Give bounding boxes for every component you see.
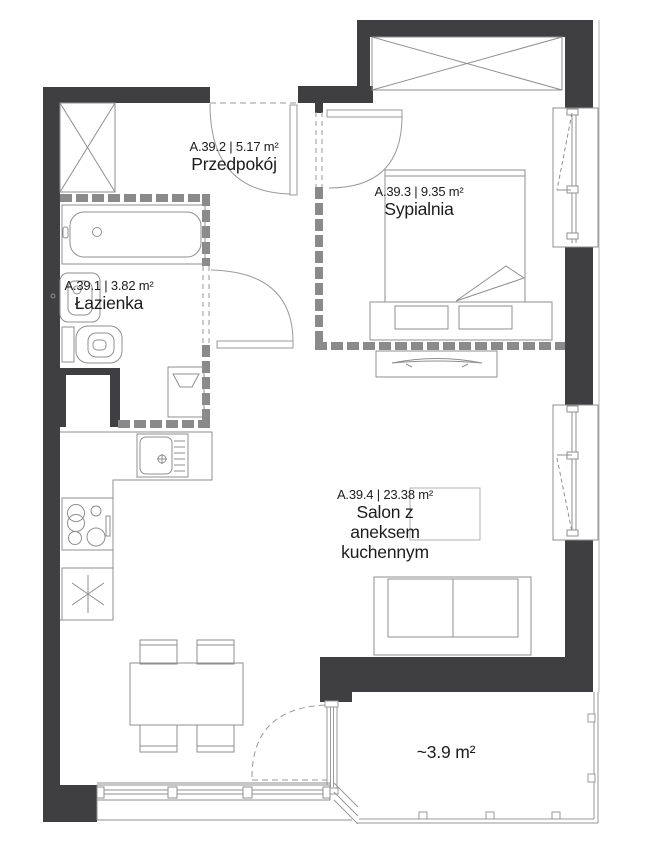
- tv-foot: [406, 364, 412, 367]
- wall-south-step: [320, 672, 352, 702]
- stove-burner: [87, 528, 105, 546]
- stove-burner: [68, 515, 85, 532]
- room-label-balcony: ~3.9 m²: [396, 742, 496, 762]
- bathroom-name-label: Łazienka: [49, 293, 169, 313]
- room-label-hall: A.39.2 | 5.17 m² Przedpokój: [174, 139, 294, 174]
- tv-screen: [392, 359, 482, 364]
- toilet-detail: [93, 340, 106, 350]
- kitchen-sink-basin: [140, 437, 172, 474]
- tv-cabinet: [376, 351, 497, 377]
- wall-right-middle: [565, 247, 593, 405]
- floor-plan: A.39.2 | 5.17 m² Przedpokój A.39.3 | 9.3…: [0, 0, 653, 844]
- living-window-cap: [567, 406, 578, 412]
- bed-blanket-fold: [456, 266, 524, 301]
- room-label-bedroom: A.39.3 | 9.35 m² Sypialnia: [359, 184, 479, 219]
- toilet-bowl-inner: [88, 333, 114, 357]
- bedroom-area-label: A.39.3 | 9.35 m²: [359, 184, 479, 199]
- bathtub-tap: [63, 227, 68, 238]
- balcony-post: [552, 812, 560, 819]
- bathtub-drain: [93, 228, 102, 237]
- balcony-post: [588, 714, 595, 722]
- shaft-cavity: [66, 375, 110, 427]
- bathroom-door-leaf: [217, 341, 293, 348]
- furniture: [51, 37, 562, 752]
- bathroom-door-arc: [211, 270, 293, 342]
- bedroom-name-label: Sypialnia: [359, 199, 479, 219]
- stove-burner: [91, 506, 101, 516]
- bedroom-window-cap: [567, 233, 578, 239]
- balcony-area-label: ~3.9 m²: [396, 742, 496, 762]
- toilet-cistern: [62, 327, 74, 362]
- wall-bottom-left-corner: [43, 785, 97, 822]
- bed-pillow: [459, 306, 512, 329]
- balcony-door-cap: [325, 701, 338, 707]
- dining-chair: [197, 640, 234, 664]
- wall-entry-right: [298, 86, 373, 103]
- hall-name-label: Przedpokój: [174, 154, 294, 174]
- wall-left: [43, 87, 60, 785]
- wall-bedroom-top: [357, 20, 593, 37]
- washing-machine-door: [173, 374, 199, 387]
- stove-burner: [68, 505, 85, 522]
- bathtub-basin: [70, 212, 201, 257]
- room-label-living: A.39.4 | 23.38 m² Salon z aneksem kuchen…: [323, 487, 447, 562]
- balcony-post: [419, 812, 427, 819]
- tv-foot: [462, 364, 468, 367]
- kitchen-counter: [60, 432, 212, 620]
- wall-right-upper: [565, 20, 593, 108]
- bedroom-door-arc: [329, 116, 402, 188]
- wall-top-hall: [43, 87, 210, 103]
- bed-pillow: [395, 306, 448, 329]
- south-window-cap: [97, 787, 104, 798]
- bathtub: [62, 205, 205, 264]
- dining-chair: [197, 725, 234, 752]
- south-window-mullion: [168, 787, 177, 798]
- dining-table: [130, 663, 243, 725]
- wall-partition-stub: [315, 103, 323, 113]
- room-label-bathroom: A.39.1 | 3.82 m² Łazienka: [49, 278, 169, 313]
- bedroom-window-cap: [567, 109, 578, 115]
- bathroom-area-label: A.39.1 | 3.82 m²: [49, 278, 169, 293]
- living-name-label: Salon z aneksem: [323, 502, 447, 542]
- dining-chair: [140, 640, 177, 664]
- hall-area-label: A.39.2 | 5.17 m²: [174, 139, 294, 154]
- stove-burner: [69, 532, 82, 545]
- south-window-mullion: [243, 787, 252, 798]
- balcony-door-arc: [252, 705, 328, 777]
- dining-chair: [140, 725, 177, 752]
- living-window-cap: [567, 530, 578, 536]
- bedroom-door-leaf: [327, 110, 402, 117]
- balcony-door-leaf: [327, 703, 337, 791]
- wall-right-lower: [565, 540, 593, 692]
- living-name-label2: kuchennym: [323, 542, 447, 562]
- balcony-post: [588, 774, 595, 782]
- south-window-cap: [323, 787, 330, 798]
- floor-plan-drawing: [0, 0, 653, 844]
- living-area-label: A.39.4 | 23.38 m²: [323, 487, 447, 502]
- stove-handle: [106, 516, 110, 536]
- south-window-band: [97, 785, 330, 800]
- wall-south-living: [320, 657, 565, 692]
- bed-headboard: [370, 302, 552, 340]
- balcony-post: [486, 812, 494, 819]
